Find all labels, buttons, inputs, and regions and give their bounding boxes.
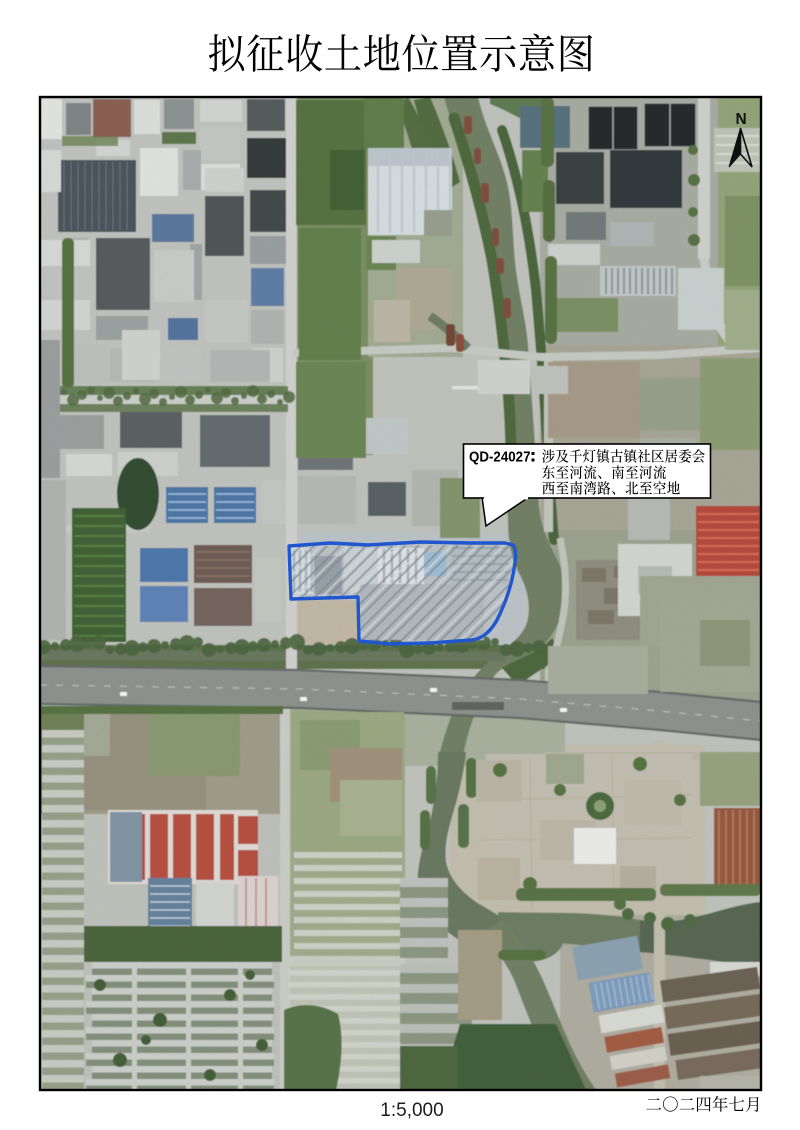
svg-text:1:5,000: 1:5,000 xyxy=(380,1100,443,1121)
svg-text:N: N xyxy=(736,111,747,128)
svg-text:QD-24027: QD-24027 xyxy=(469,449,531,466)
